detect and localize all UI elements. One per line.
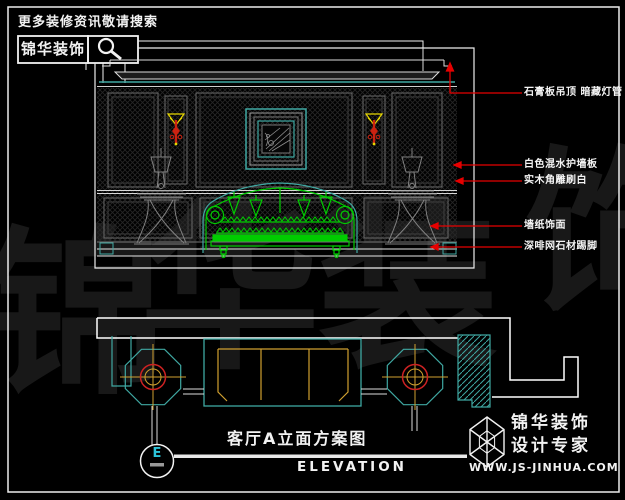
side-table-plan-right: [382, 344, 448, 410]
column-hatch: [458, 335, 490, 407]
ceiling-molding: [97, 48, 457, 87]
cad-sheet: 锦 华 装 饰: [0, 0, 625, 500]
header-brand-label: 锦华装饰: [21, 41, 85, 58]
magnifier-icon: [99, 39, 121, 59]
hexagon-cube-logo-icon: [470, 417, 504, 467]
elevation-marker-letter: E: [149, 447, 165, 462]
plan-return-wall: [112, 336, 131, 386]
annotation-label-ceiling: 石膏板吊顶 暗藏灯管: [524, 87, 622, 99]
annotation-label-wood-trim: 实木角雕刷白: [524, 175, 587, 187]
footer-website: WWW.JS-JINHUA.COM: [469, 462, 619, 475]
annotation-label-skirting: 深啡网石材踢脚: [524, 241, 598, 253]
annotation-label-wall-panel: 白色混水护墙板: [524, 159, 598, 171]
annotation-label-wallpaper: 墙纸饰面: [524, 220, 566, 232]
drawing-title-cn: 客厅A立面方案图: [227, 430, 367, 448]
side-table-plan-left: [120, 344, 186, 410]
footer-brand: 锦华装饰: [511, 414, 591, 434]
lamp-symbol: [382, 344, 448, 410]
drawing-title-en: ELEVATION: [297, 460, 407, 476]
plan-view: [97, 318, 578, 445]
sofa-plan: [204, 339, 361, 406]
header-slogan: 更多装修资讯敬请搜索: [18, 16, 158, 31]
plan-wall-outline: [97, 318, 578, 397]
lamp-symbol: [120, 344, 186, 410]
footer-tagline: 设计专家: [511, 437, 591, 457]
title-underline: [174, 455, 467, 459]
